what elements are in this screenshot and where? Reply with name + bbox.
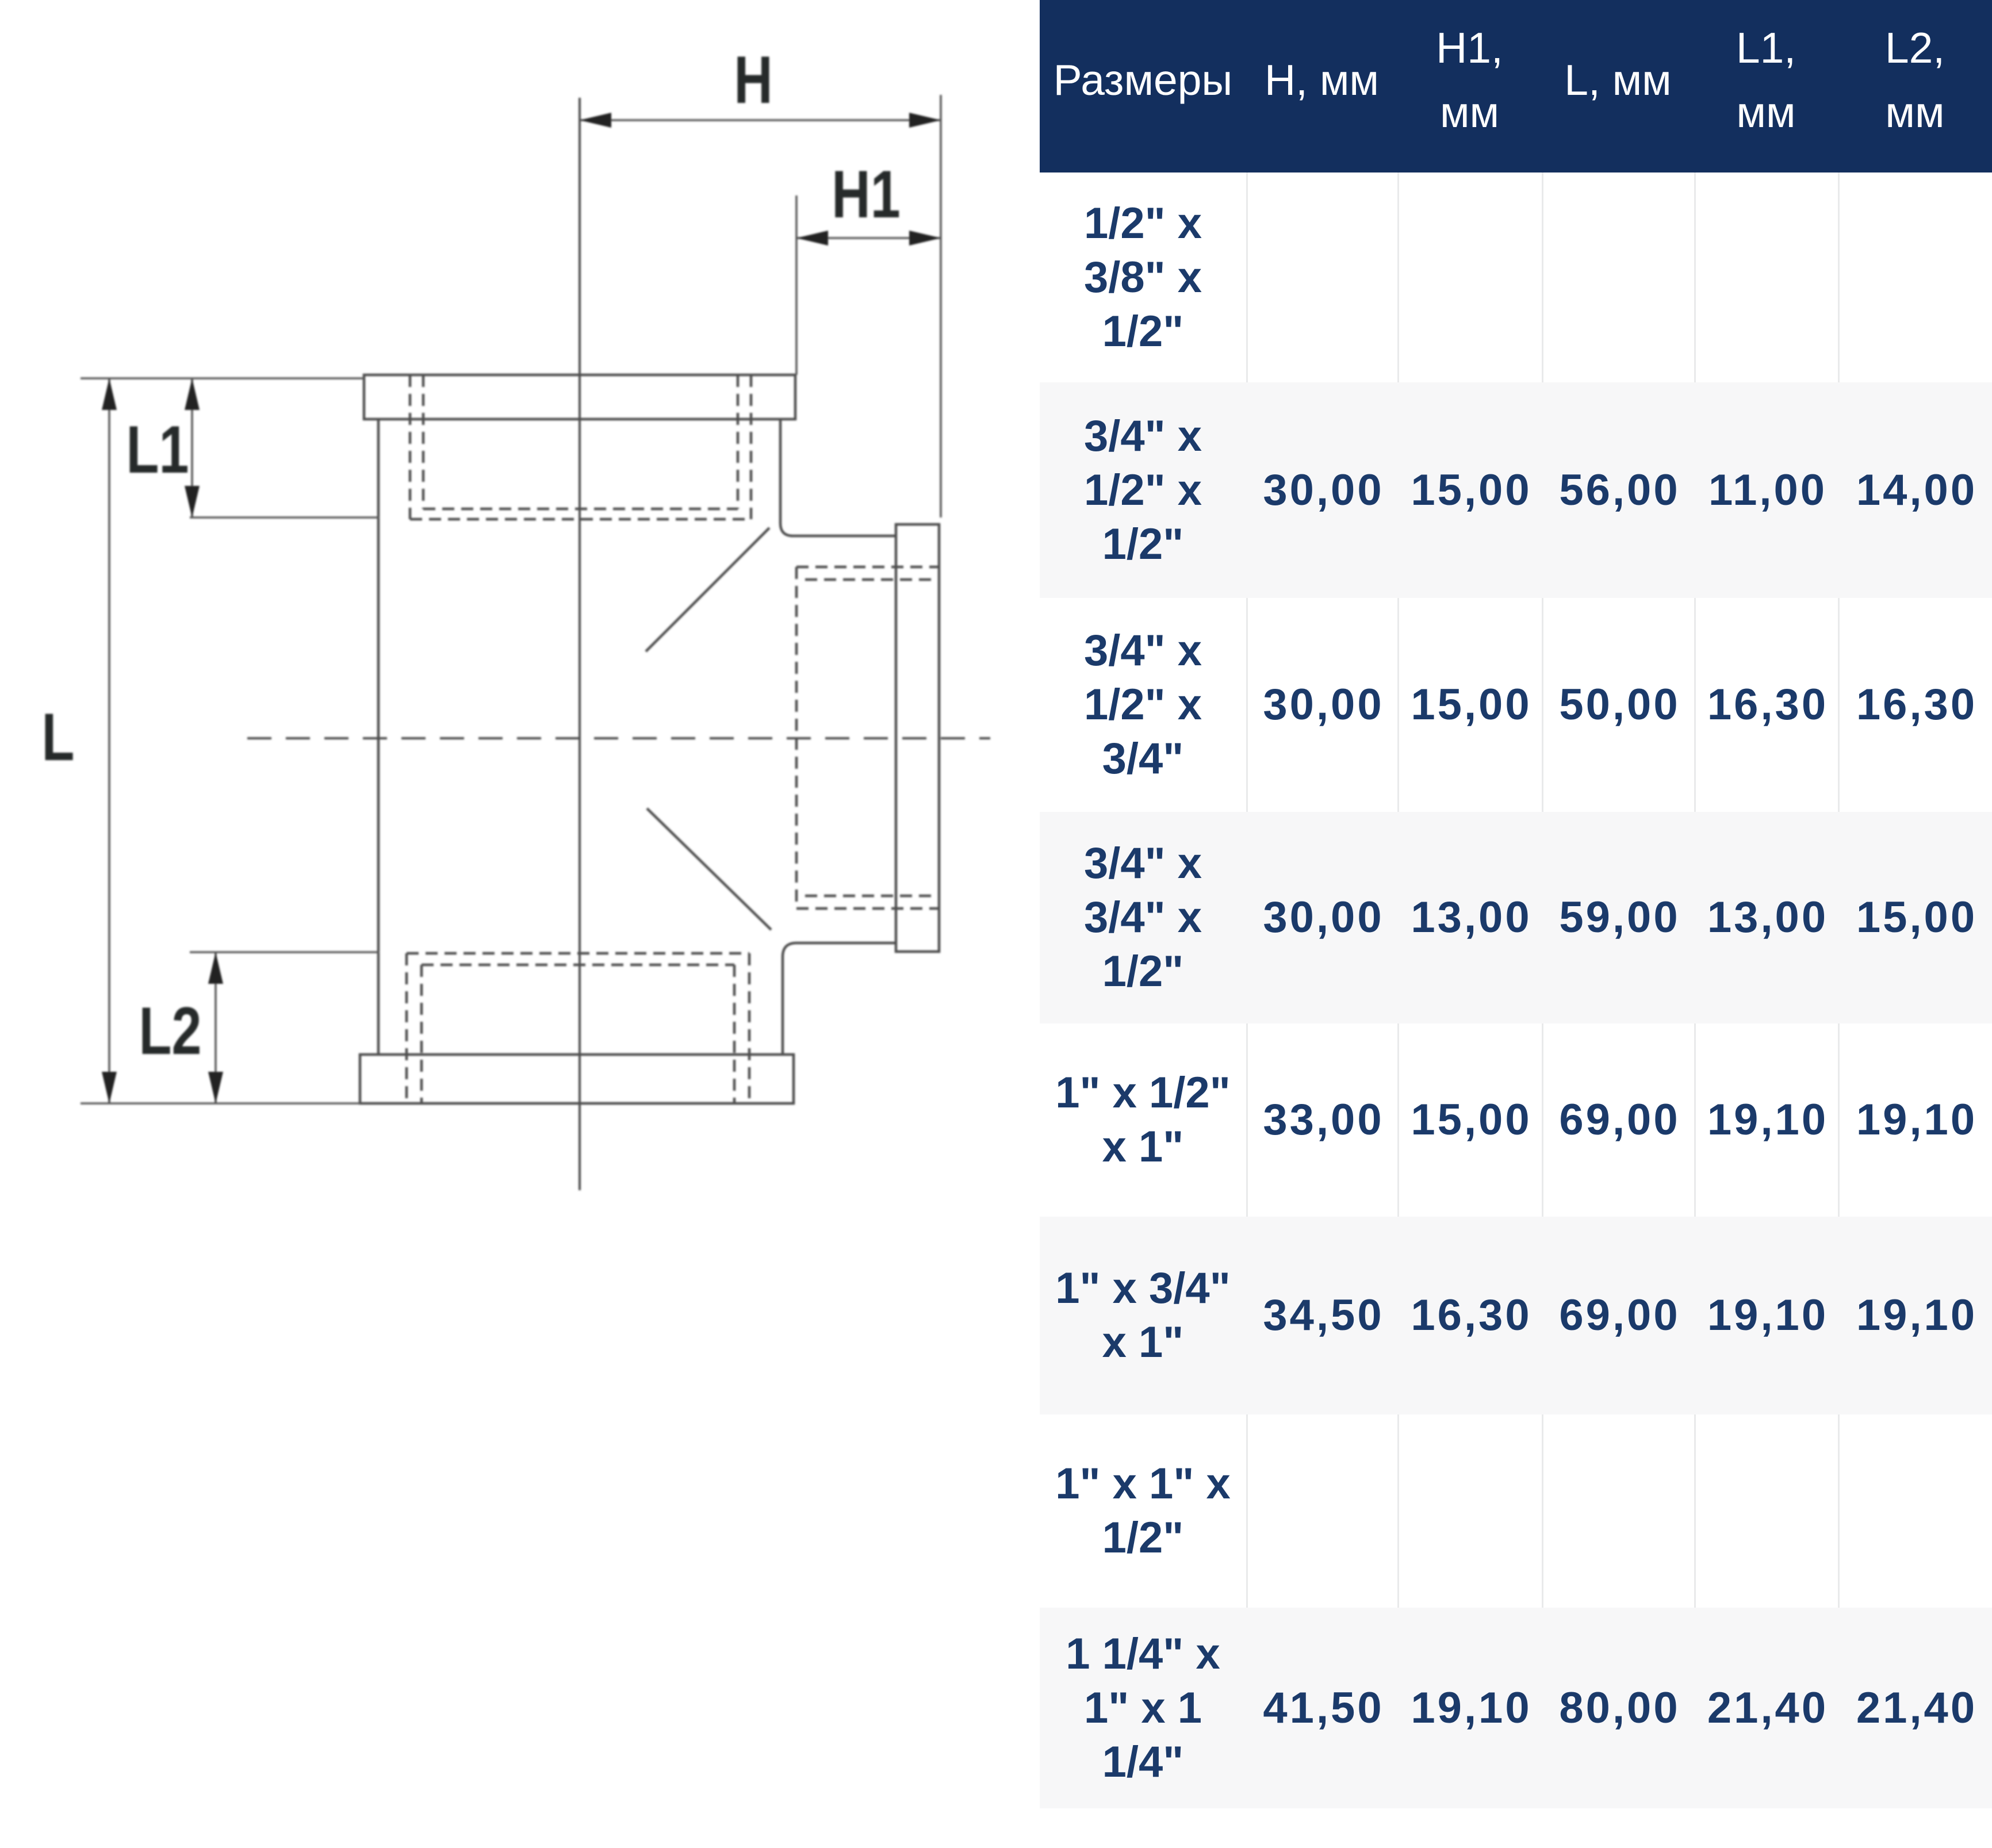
svg-text:L2: L2	[139, 994, 201, 1068]
svg-text:L: L	[41, 700, 74, 775]
svg-text:L1: L1	[126, 412, 189, 487]
svg-text:H1: H1	[832, 157, 901, 232]
svg-text:H: H	[734, 43, 773, 117]
